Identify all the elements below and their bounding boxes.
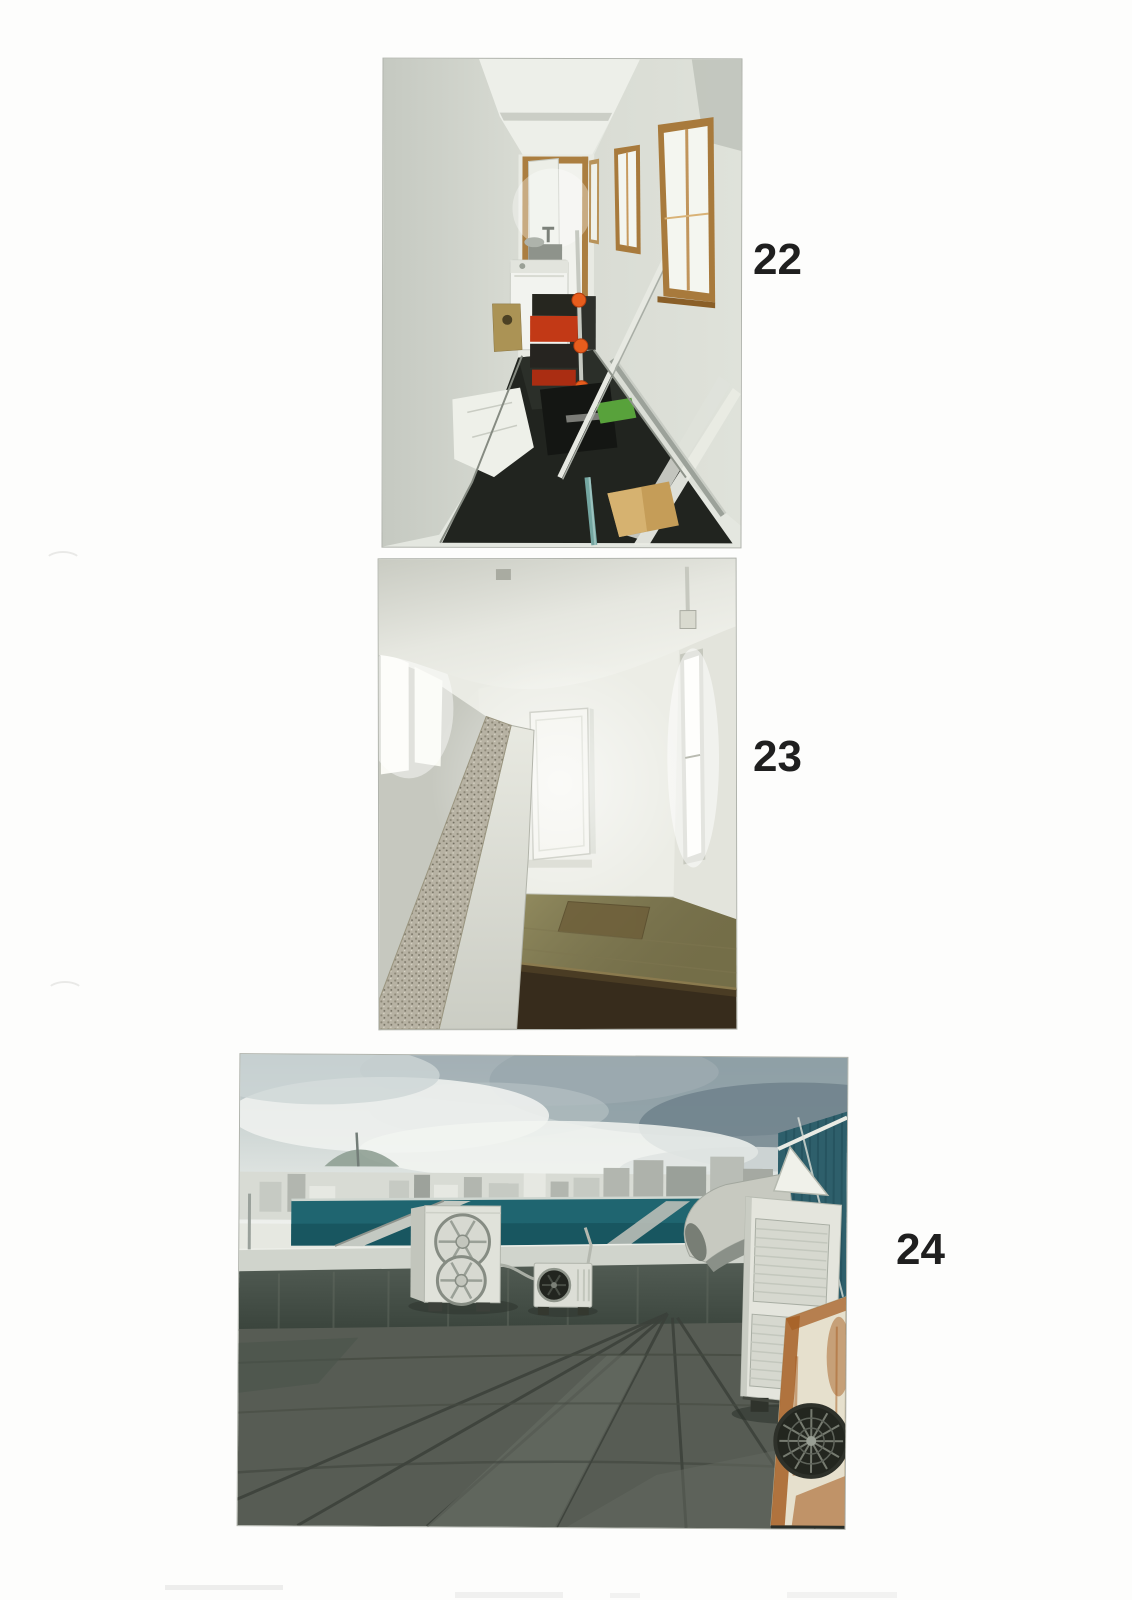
photo-attic-room (378, 558, 738, 1031)
rooftop-scene (238, 1054, 848, 1529)
door-threshold (528, 860, 592, 868)
near-window (657, 117, 715, 308)
ac-unit-double-fan (410, 1206, 500, 1312)
corridor-scene (382, 59, 741, 548)
fan-grille (437, 1257, 485, 1305)
scan-artifact-bar (610, 1593, 640, 1598)
scan-artifact-bar (455, 1592, 563, 1598)
light-glare (512, 168, 592, 248)
far-window (589, 159, 599, 245)
ceiling-beam (500, 113, 612, 121)
photo-number-23: 23 (753, 735, 802, 779)
photo-number-22: 22 (753, 238, 802, 282)
photo-corridor (381, 58, 742, 549)
scan-artifact-arc (44, 551, 82, 573)
middle-window (614, 145, 641, 255)
large-fan-grille (775, 1405, 847, 1477)
louver-panel (753, 1219, 829, 1307)
photo-rooftop (237, 1053, 849, 1530)
stacked-crates (530, 294, 578, 386)
scan-artifact-arc (46, 981, 84, 1003)
photo-number-24: 24 (896, 1228, 945, 1272)
scan-artifact-bar (787, 1592, 897, 1598)
ceiling-fixture (496, 569, 511, 580)
attic-scene (379, 559, 737, 1030)
scan-artifact-bar (165, 1585, 283, 1590)
mossy-wall (239, 1259, 778, 1334)
cardboard-box (492, 304, 522, 352)
